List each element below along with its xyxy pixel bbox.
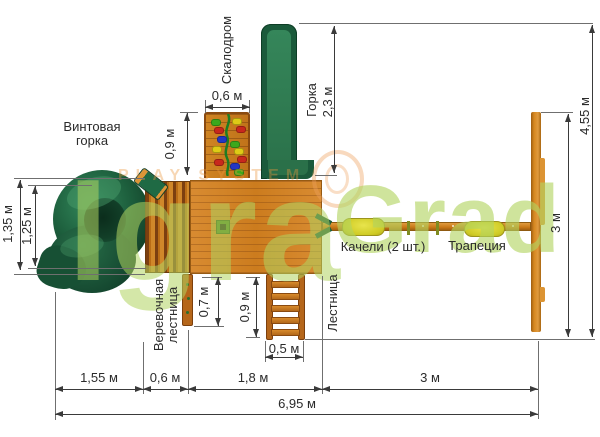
ref-line-top bbox=[299, 23, 593, 24]
main-platform-deck bbox=[190, 180, 322, 274]
ext-slide-bottom bbox=[315, 175, 337, 176]
ref-line-deck-top bbox=[14, 178, 145, 179]
climbing-hold bbox=[234, 169, 244, 176]
ladder-rung bbox=[271, 293, 300, 300]
dim-rope-ladder-length bbox=[218, 277, 219, 326]
ladder-rung bbox=[271, 317, 300, 324]
label-wall-height: 0,9 м bbox=[163, 129, 177, 160]
dim-section-platform bbox=[188, 389, 322, 390]
ext-x-spiral bbox=[55, 292, 56, 420]
label-section-platform: 1,8 м bbox=[238, 371, 269, 385]
dim-section-swings bbox=[322, 389, 538, 390]
climbing-hold bbox=[232, 118, 242, 125]
label-ladder-length: 0,9 м bbox=[238, 292, 252, 323]
dim-wall-width bbox=[205, 107, 250, 108]
label-total-depth: 4,55 м bbox=[578, 97, 592, 135]
playground-top-view-plan: PLAY SYSTEM Igra Grad Винтовая горка Ска… bbox=[0, 0, 600, 437]
ref-line-spiral-bottom bbox=[28, 268, 146, 269]
dim-total-depth bbox=[592, 25, 593, 337]
dim-ladder-width bbox=[265, 357, 303, 358]
rope-knot bbox=[186, 283, 189, 286]
ladder-rung bbox=[271, 281, 300, 288]
dim-swing-frame-depth bbox=[568, 114, 569, 337]
climbing-hold bbox=[237, 156, 247, 163]
straight-slide-bottom-channel bbox=[268, 160, 308, 175]
climbing-hold bbox=[230, 141, 240, 148]
label-section-spiral: 1,55 м bbox=[80, 371, 118, 385]
climbing-hold bbox=[211, 119, 221, 126]
label-spiral-inner: 1,25 м bbox=[20, 207, 34, 245]
post-notch bbox=[540, 287, 545, 302]
label-ladder-width: 0,5 м bbox=[269, 342, 300, 356]
label-section-bridge: 0,6 м bbox=[150, 371, 181, 385]
rope-knot bbox=[186, 311, 189, 314]
label-climbing-wall: Скалодром bbox=[220, 16, 234, 84]
label-swings: Качели (2 шт.) bbox=[341, 240, 426, 254]
rope-knot bbox=[187, 297, 190, 300]
ext-ladder-bottom bbox=[246, 337, 260, 338]
label-slide: Горка bbox=[305, 83, 319, 117]
ext-post-top bbox=[541, 112, 573, 113]
beam-hole bbox=[422, 225, 424, 227]
ref-line-bottom bbox=[305, 339, 595, 340]
ext-x-platform bbox=[188, 330, 189, 394]
label-spiral-slide: Винтовая горка bbox=[63, 120, 120, 148]
label-wall-width: 0,6 м bbox=[212, 89, 243, 103]
swing-hanger-mark bbox=[436, 221, 439, 235]
dim-section-spiral bbox=[55, 389, 143, 390]
label-trapeze: Трапеция bbox=[448, 239, 506, 253]
ladder-rung bbox=[271, 305, 300, 312]
dim-spiral-inner bbox=[35, 186, 36, 266]
climbing-hold bbox=[214, 127, 224, 134]
dim-total-length bbox=[55, 414, 538, 415]
dim-wall-height bbox=[187, 113, 188, 175]
climbing-hold bbox=[212, 146, 222, 153]
climbing-hold bbox=[236, 126, 246, 133]
label-swing-frame-depth: 3 м bbox=[549, 213, 563, 233]
label-rope-ladder-line1: Веревочная bbox=[152, 279, 166, 351]
label-rope-ladder-length: 0,7 м bbox=[197, 287, 211, 318]
post-notch bbox=[540, 158, 545, 225]
climbing-wall bbox=[204, 112, 250, 178]
ext-x-beam bbox=[322, 276, 323, 394]
ladder-rung bbox=[271, 329, 300, 336]
ext-x-post bbox=[538, 341, 539, 419]
label-total-length: 6,95 м bbox=[278, 397, 316, 411]
ext-ladder-right bbox=[303, 341, 304, 362]
deck-hatch bbox=[216, 220, 230, 234]
climbing-hold bbox=[214, 159, 224, 166]
climbing-hold bbox=[234, 148, 244, 155]
beam-hole bbox=[452, 225, 454, 227]
swing-hanger-mark bbox=[407, 221, 410, 235]
label-rope-ladder-line2: лестница bbox=[166, 287, 180, 343]
straight-slide-channel bbox=[267, 30, 291, 179]
label-spiral-footprint: 1,35 м bbox=[1, 205, 15, 243]
ref-line-deck-bottom bbox=[14, 274, 145, 275]
dim-section-bridge bbox=[143, 389, 188, 390]
label-ladder: Лестница bbox=[326, 274, 340, 331]
ext-ropeladder-bottom bbox=[194, 326, 224, 327]
trapeze-bar bbox=[464, 221, 505, 237]
climbing-hold bbox=[217, 136, 227, 143]
rope-ladder-shape bbox=[182, 274, 193, 326]
dim-ladder-length bbox=[256, 277, 257, 337]
swing-seat bbox=[342, 218, 385, 236]
label-slide-length: 2,3 м bbox=[321, 87, 335, 118]
beam-hole bbox=[512, 225, 514, 227]
label-section-swings: 3 м bbox=[420, 371, 440, 385]
